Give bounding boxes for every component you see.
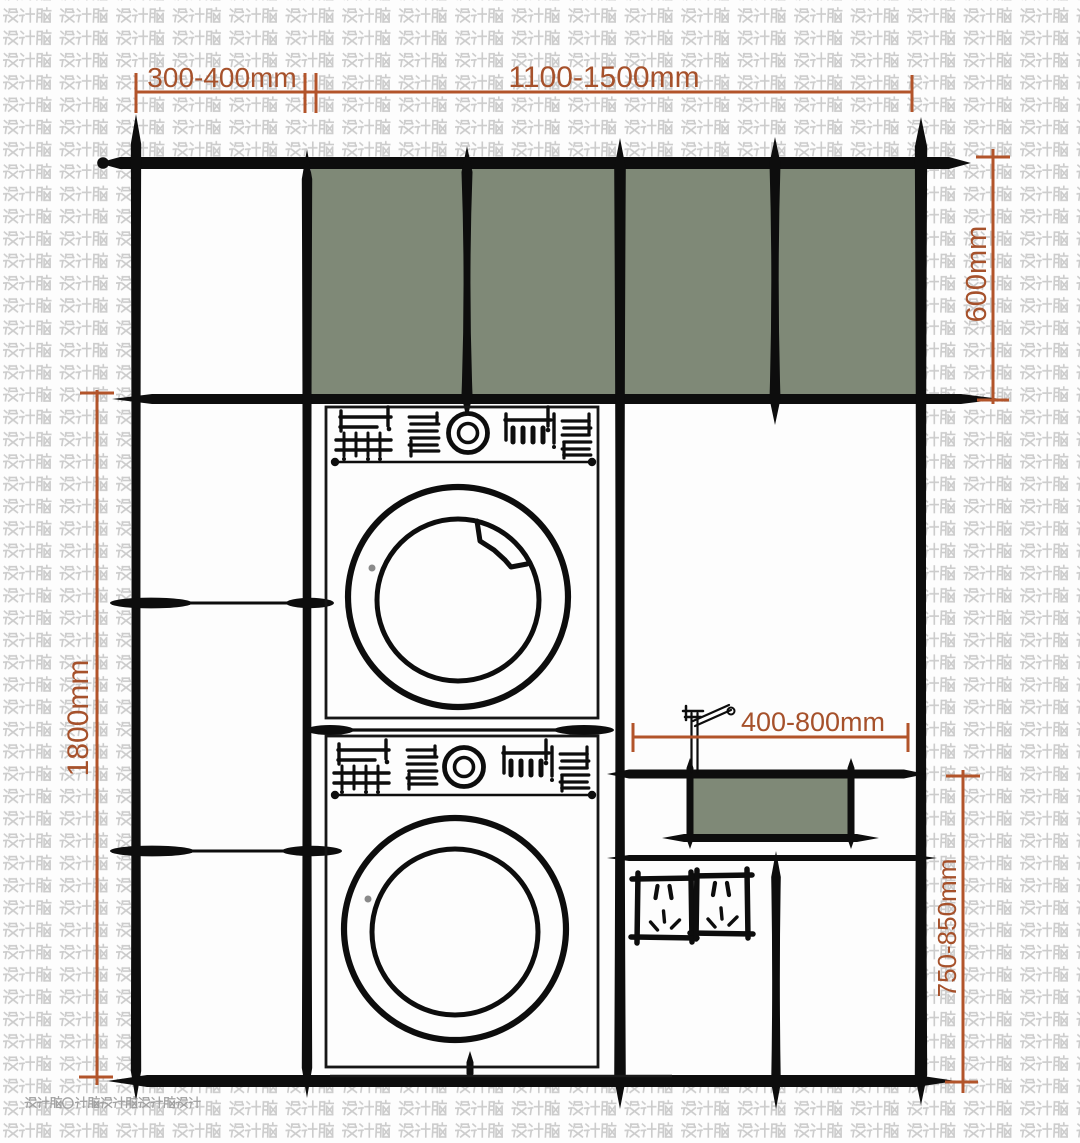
svg-text:1800mm: 1800mm [62, 660, 95, 777]
svg-text:1100-1500mm: 1100-1500mm [508, 61, 699, 94]
svg-text:300-400mm: 300-400mm [147, 62, 296, 93]
svg-text:600mm: 600mm [961, 226, 993, 323]
svg-text:400-800mm: 400-800mm [741, 707, 885, 737]
svg-text:750-850mm: 750-850mm [932, 859, 962, 998]
